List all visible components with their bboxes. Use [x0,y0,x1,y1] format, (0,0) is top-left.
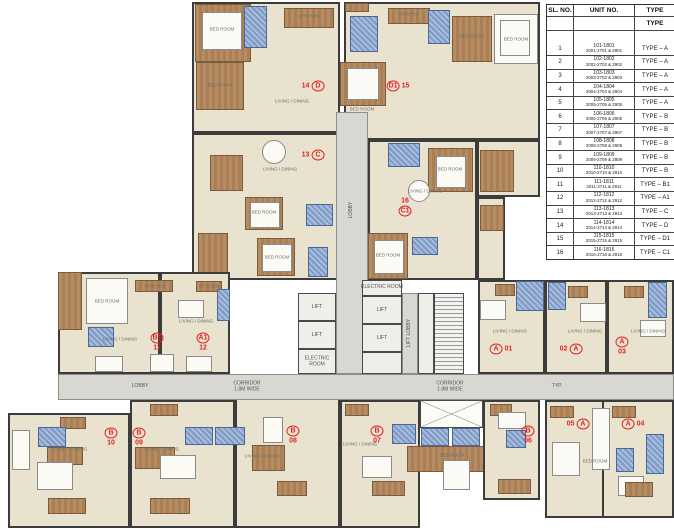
unit-no-line2: 2010-2710 & 2910 [586,171,622,176]
header-unit-no: UNIT NO. [573,5,634,16]
room-label: LIVING / DINING [103,338,137,343]
bathroom [421,428,449,446]
unit-label: 16C1 [399,198,412,217]
unit-no-line2: 2015-2715 & 2915 [586,239,622,244]
unit-number: 10 [107,440,115,447]
cell-unit-no: 105-18052005-2705 & 2905 [573,97,634,110]
table-row: 1101-18012001-2701 & 2901TYPE – A [547,43,674,56]
unit-label: 02A [560,344,583,355]
deck [498,479,531,494]
deck [48,498,86,514]
floorplan-canvas: LIFT LIFT LIFT LIFT [0,0,674,532]
unit-type-letter: A [576,419,589,430]
unit-type-letter: B [105,428,118,439]
subheader-type: TYPE [634,17,674,30]
room-label: BED ROOM [504,38,529,43]
unit-no-line2: 2013-2713 & 2913 [586,212,622,217]
area-label: ELECTRIC ROOM [361,285,403,291]
room-label: LIVING / DINING [275,100,309,105]
unit-number: 06 [524,438,532,445]
table-row: 10110-18102010-2710 & 2910TYPE – B [547,164,674,178]
cell-type: TYPE – A [634,70,674,83]
cell-sl-no: 7 [547,124,573,137]
unit-no-line2: 2011-2711 & 2911 [586,185,621,190]
unit-label: 05A [567,419,590,430]
unit-number: 16 [401,198,409,205]
lift-label: LIFT [312,304,322,310]
unit-label: A112 [197,333,210,352]
unit-no-line2: 2008-2708 & 2908 [586,144,622,149]
cell-unit-no: 108-18082008-2708 & 2908 [573,138,634,151]
area-label: CORRIDOR1.8M WIDE [436,381,463,393]
cell-unit-no: 112-18122012-2712 & 2912 [573,192,634,205]
unit-label: B10 [105,428,118,447]
kitchen-counter [550,406,574,418]
cell-type: TYPE – C [634,206,674,219]
unit-08-block [235,398,340,528]
lift-shaft: LIFT [362,324,402,352]
table-row: 8108-18082008-2708 & 2908TYPE – B [547,137,674,151]
cell-sl-no: 4 [547,83,573,96]
room-label: BED ROOM [460,35,485,40]
wardrobe [58,272,82,330]
room-label: BED ROOM [376,254,401,259]
unit-label: A03 [616,337,629,356]
room-label: BED ROOM [350,108,375,113]
table-row: 12112-18122012-2712 & 2912TYPE – A1 [547,191,674,205]
cell-type: TYPE – B [634,165,674,178]
cell-type: TYPE – A [634,97,674,110]
lift-shaft: LIFT [298,293,336,321]
bathroom [392,424,416,444]
room-label: BED ROOM [210,28,235,33]
unit-number: 08 [289,438,297,445]
unit-no-line2: 2016-2716 & 2916 [586,253,622,258]
table-row: 2102-18022002-2702 & 2902TYPE – A [547,55,674,69]
unit-label: B111 [151,333,164,352]
unit-no-line2: 2006-2706 & 2906 [586,117,622,122]
cell-sl-no: 2 [547,56,573,69]
area-label: LOBBY [349,202,355,219]
table-row: 15115-18152015-2715 & 2915TYPE – D1 [547,232,674,246]
bed [580,303,606,322]
bed [160,455,196,479]
table-row: 16116-18162016-2716 & 2916TYPE – C1 [547,245,674,259]
unit-number: 02 [560,346,568,353]
cell-type: TYPE – C1 [634,246,674,259]
bathroom [412,237,438,255]
unit-no-line2: 2009-2709 & 2909 [586,158,622,163]
area-label: ELECTRICROOM [305,356,330,368]
unit-number: 04 [637,421,645,428]
unit-no-line2: 2004-2704 & 2904 [586,90,622,95]
bathroom [648,282,667,318]
cell-sl-no: 3 [547,70,573,83]
unit-type-letter: A [490,344,503,355]
cell-sl-no: 12 [547,192,573,205]
lift-shaft: LIFT [362,296,402,324]
utility-room [95,356,123,372]
kitchen-counter [612,406,636,418]
bedroom-floor [480,150,514,192]
wardrobe [210,155,243,191]
unit-number: 01 [505,346,513,353]
cell-type: TYPE – D [634,219,674,232]
unit-type-letter: A [616,337,629,348]
cell-unit-no: 114-18142014-2714 & 2914 [573,219,634,232]
cell-unit-no: 102-18022002-2702 & 2902 [573,56,634,69]
unit-type-table: SL. NO. UNIT NO. TYPE TYPE 1101-18012001… [546,4,674,260]
utility-room [186,356,212,372]
terrace [420,400,483,428]
bathroom [350,16,378,52]
unit-number: 11 [153,345,160,352]
unit-type-letter: A [622,419,635,430]
bathroom [548,282,566,310]
table-row: 11111-18112011-2711 & 2911TYPE – B1 [547,177,674,191]
room-label: BED ROOM [438,168,463,173]
table-header-row: SL. NO. UNIT NO. TYPE [547,5,674,16]
unit-number: 12 [199,345,207,352]
unit-type-letter: A [569,344,582,355]
deck [372,481,405,496]
subheader-empty [573,17,634,30]
bathroom [388,143,420,167]
room-label: KITCHEN [199,285,219,290]
unit-type-letter: D1 [387,81,400,92]
room-label: BED ROOM [208,84,233,89]
bathroom [428,10,450,44]
cell-sl-no: 15 [547,233,573,246]
table-body: 1101-18012001-2701 & 2901TYPE – A2102-18… [547,43,674,260]
header-type: TYPE [634,5,674,16]
unit-label: 14D [302,81,325,92]
bathroom [616,448,634,472]
cell-type: TYPE – A [634,43,674,56]
cell-unit-no: 115-18152015-2715 & 2915 [573,233,634,246]
cell-sl-no: 11 [547,178,573,191]
room-label: BED ROOM [95,300,120,305]
unit-label: D115 [387,81,410,92]
unit-number: 07 [373,438,381,445]
cell-type: TYPE – B [634,124,674,137]
kitchen-counter [568,286,588,298]
deck [625,482,653,497]
area-label: LIFT LOBBY [407,319,413,347]
unit-number: 15 [402,83,410,90]
unit-no-line2: 2007-2707 & 2907 [586,131,622,136]
unit-type-letter: D [311,81,324,92]
deck [277,481,307,496]
unit-number: 03 [618,349,626,356]
cell-sl-no: 5 [547,97,573,110]
room-label: LIVING / DINING [568,330,602,335]
unit-no-line2: 2012-2712 & 2912 [586,199,622,204]
room-label: LIVING / DINING [263,168,297,173]
room-label: KITCHEN [299,15,319,20]
unit-label: 13C [302,150,325,161]
cell-sl-no: 6 [547,110,573,123]
subheader-empty [547,17,573,30]
unit-no-line2: 2014-2714 & 2914 [586,226,622,231]
table-subheader-row: TYPE [547,16,674,30]
unit-label: A01 [490,344,513,355]
bed [12,430,30,470]
bathroom [38,427,66,447]
cell-unit-no: 103-18032003-2703 & 2903 [573,70,634,83]
table-row: 6106-18062006-2706 & 2906TYPE – B [547,109,674,123]
table-spacer-row [547,30,674,42]
table-row: 9109-18092009-2709 & 2909TYPE – B [547,150,674,164]
area-label: CORRIDOR1.8M WIDE [233,381,260,393]
unit-number: 05 [567,421,575,428]
cell-type: TYPE – B [634,110,674,123]
lift-label: LIFT [312,332,322,338]
cell-unit-no: 107-18072007-2707 & 2907 [573,124,634,137]
room-label: BED ROOM [440,454,465,459]
cell-unit-no: 110-18102010-2710 & 2910 [573,165,634,178]
cell-unit-no: 104-18042004-2704 & 2904 [573,83,634,96]
unit-number: 09 [135,440,143,447]
kitchen-counter [345,404,369,416]
lift-shaft: LIFT [298,321,336,349]
unit-no-line2: 2003-2703 & 2903 [586,76,622,81]
cell-sl-no: 8 [547,138,573,151]
lift-label: LIFT [377,307,387,313]
spacer-empty [573,31,634,42]
cell-type: TYPE – B [634,138,674,151]
room-label: BED ROOM [583,460,608,465]
unit-type-letter: C [311,150,324,161]
staircase [434,293,464,374]
utility-room [150,354,174,372]
deck [345,3,369,12]
service-room [362,352,402,374]
bed [37,462,73,490]
table-row: 14114-18142014-2714 & 2914TYPE – D [547,218,674,232]
unit-type-letter: A1 [197,333,210,344]
area-label: LOBBY [132,384,149,390]
table-row: 5105-18052005-2705 & 2905TYPE – A [547,96,674,110]
bed [552,442,580,476]
kitchen-counter [495,284,515,296]
cell-sl-no: 9 [547,151,573,164]
room-label: BED ROOM [265,256,290,261]
deck [150,498,190,514]
wardrobe [480,205,504,231]
spacer-empty [634,31,674,42]
room-label: LIVING / DINING [145,448,179,453]
cell-type: TYPE – A [634,83,674,96]
cell-unit-no: 111-18112011-2711 & 2911 [573,178,634,191]
balcony-deck [198,233,228,277]
bathroom [215,427,245,445]
unit-no-line2: 2002-2702 & 2902 [586,63,622,68]
table-row: 13113-18132013-2713 & 2913TYPE – C [547,205,674,219]
unit-type-letter: B [522,426,535,437]
unit-label: B07 [371,426,384,445]
bathroom [244,6,267,48]
cell-type: TYPE – D1 [634,233,674,246]
spacer-empty [547,31,573,42]
unit-no-line2: 2001-2701 & 2901 [586,49,622,54]
cell-type: TYPE – A [634,56,674,69]
bathroom [452,428,480,446]
bathroom [646,434,664,474]
cell-type: TYPE – B [634,151,674,164]
unit-type-letter: B [371,426,384,437]
unit-type-letter: C1 [399,206,412,217]
kitchen-counter [624,286,644,298]
cell-unit-no: 106-18062006-2706 & 2906 [573,110,634,123]
bathroom [306,204,333,226]
unit-type-letter: B [133,428,146,439]
area-label: TYP. [552,384,562,390]
cell-sl-no: 14 [547,219,573,232]
unit-label: A04 [622,419,645,430]
bathroom [217,289,230,321]
bathroom [308,247,328,277]
cell-unit-no: 116-18162016-2716 & 2916 [573,246,634,259]
bed [178,300,204,318]
room-label: BED ROOM [252,211,277,216]
room-label: LIVING / DINING [631,330,665,335]
unit-number: 13 [302,152,310,159]
unit-label: B09 [133,428,146,447]
room-label: LIVING / DINING [245,455,279,460]
unit-number: 14 [302,83,310,90]
room-label: LIVING / DINING [179,320,213,325]
cell-sl-no: 16 [547,246,573,259]
lift-label: LIFT [377,335,387,341]
room-label: LIVING / DINING [493,330,527,335]
corridor [58,374,674,400]
cell-unit-no: 109-18092009-2709 & 2909 [573,151,634,164]
bed [443,460,470,490]
dining-table [262,140,286,164]
cell-sl-no: 10 [547,165,573,178]
cell-sl-no: 1 [547,43,573,56]
header-sl-no: SL. NO. [547,5,573,16]
unit-type-letter: B1 [151,333,164,344]
bathroom [516,281,544,311]
room-label: KITCHEN [399,13,419,18]
cell-type: TYPE – B1 [634,178,674,191]
room-label: KITCHEN [145,285,165,290]
cell-unit-no: 113-18132013-2713 & 2913 [573,206,634,219]
cell-sl-no: 13 [547,206,573,219]
table-row: 7107-18072007-2707 & 2907TYPE – B [547,123,674,137]
unit-label: B08 [287,426,300,445]
bed [362,456,392,478]
table-row: 4104-18042004-2704 & 2904TYPE – A [547,82,674,96]
room-label: LIVING / DINING [408,190,442,195]
bathroom [185,427,213,445]
unit-label: B06 [522,426,535,445]
room-label: LIVING / DINING [53,448,87,453]
bed [263,417,283,443]
unit-no-line2: 2005-2705 & 2905 [586,103,622,108]
bed [480,300,506,320]
cell-unit-no: 101-18012001-2701 & 2901 [573,43,634,56]
table-row: 3103-18032003-2703 & 2903TYPE – A [547,69,674,83]
service-shaft [418,293,434,374]
kitchen-counter [150,404,178,416]
bed [347,68,379,100]
cell-type: TYPE – A1 [634,192,674,205]
unit-type-letter: B [287,426,300,437]
